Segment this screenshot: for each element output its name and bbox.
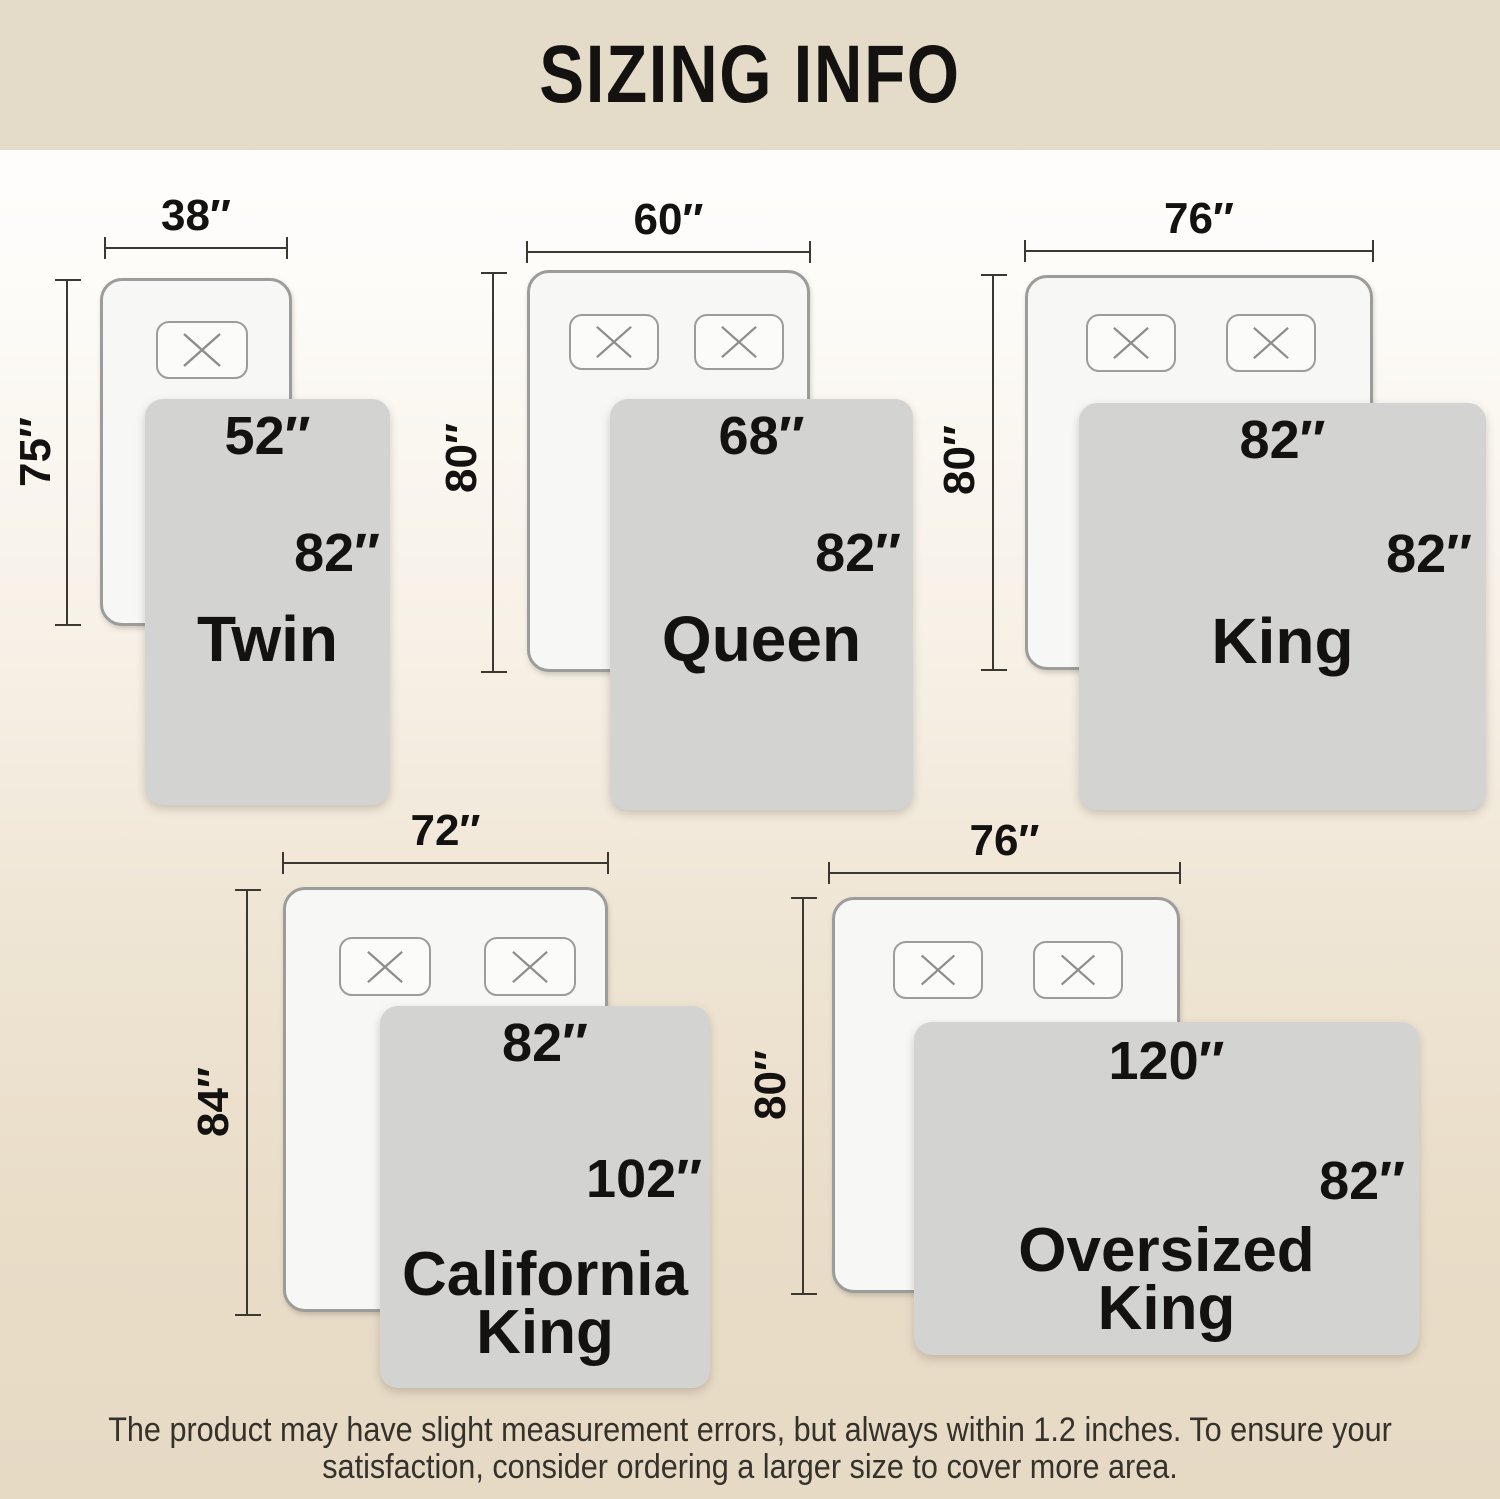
size-name-label: Queen (610, 610, 913, 670)
x-icon (508, 948, 552, 986)
pillow-icon (156, 321, 248, 379)
blanket-length-value: 82″ (815, 522, 901, 584)
size-name-label: King (1079, 612, 1486, 672)
x-icon (918, 951, 958, 989)
x-icon (1058, 951, 1098, 989)
blanket-shape: 120″ 82″ Oversized King (914, 1022, 1419, 1355)
pillow-icon (1086, 314, 1176, 372)
pillow-icon (893, 941, 983, 999)
x-icon (180, 330, 224, 370)
x-icon (592, 323, 636, 361)
pillow-icon (1226, 314, 1316, 372)
mattress-length-value: 80″ (746, 1050, 796, 1120)
mattress-length-value: 75″ (11, 417, 61, 487)
disclaimer-note: The product may have slight measurement … (75, 1412, 1425, 1486)
mattress-length-value: 84″ (189, 1067, 239, 1137)
width-dimension-line: 38″ (105, 247, 287, 249)
blanket-length-value: 82″ (1386, 523, 1472, 585)
disclaimer-line-1: The product may have slight measurement … (75, 1412, 1425, 1449)
width-dimension-line: 76″ (1025, 250, 1373, 252)
blanket-width-value: 120″ (914, 1030, 1419, 1092)
length-dimension-line (492, 273, 494, 672)
width-dimension-line: 76″ (829, 872, 1180, 874)
mattress-width-value: 76″ (969, 816, 1039, 866)
mattress-length-value: 80″ (935, 425, 985, 495)
blanket-length-value: 102″ (586, 1148, 702, 1210)
pillow-icon (484, 937, 576, 996)
length-dimension-line (802, 898, 804, 1294)
mattress-width-value: 60″ (633, 195, 703, 245)
width-dimension-line: 72″ (283, 862, 608, 864)
sizing-info-page: SIZING INFO 38″ 75″ 52″ 82″ Twin 60″ 80″ (0, 0, 1500, 1499)
size-name-label: California King (380, 1246, 710, 1361)
x-icon (1109, 324, 1153, 362)
size-name-label: Twin (145, 610, 390, 670)
mattress-width-value: 38″ (161, 191, 231, 241)
pillow-icon (1033, 941, 1123, 999)
disclaimer-line-2: satisfaction, consider ordering a larger… (75, 1449, 1425, 1486)
blanket-width-value: 68″ (610, 405, 913, 467)
x-icon (363, 948, 407, 986)
mattress-length-value: 80″ (437, 423, 487, 493)
mattress-width-value: 76″ (1164, 194, 1234, 244)
length-dimension-line (992, 275, 994, 670)
page-title: SIZING INFO (539, 28, 960, 122)
blanket-length-value: 82″ (1319, 1150, 1405, 1212)
length-dimension-line (246, 890, 248, 1315)
blanket-shape: 68″ 82″ Queen (610, 399, 913, 810)
width-dimension-line: 60″ (527, 251, 810, 253)
mattress-width-value: 72″ (410, 806, 480, 856)
blanket-shape: 52″ 82″ Twin (145, 399, 390, 805)
header-banner: SIZING INFO (0, 0, 1500, 150)
size-name-label: Oversized King (982, 1222, 1352, 1337)
blanket-length-value: 82″ (294, 522, 380, 584)
blanket-width-value: 82″ (1079, 409, 1486, 471)
blanket-width-value: 82″ (380, 1012, 710, 1074)
pillow-icon (569, 314, 659, 370)
blanket-shape: 82″ 102″ California King (380, 1006, 710, 1388)
pillow-icon (694, 314, 784, 370)
length-dimension-line (66, 280, 68, 625)
blanket-width-value: 52″ (145, 405, 390, 467)
x-icon (1249, 324, 1293, 362)
blanket-shape: 82″ 82″ King (1079, 403, 1486, 810)
pillow-icon (339, 937, 431, 996)
x-icon (717, 323, 761, 361)
